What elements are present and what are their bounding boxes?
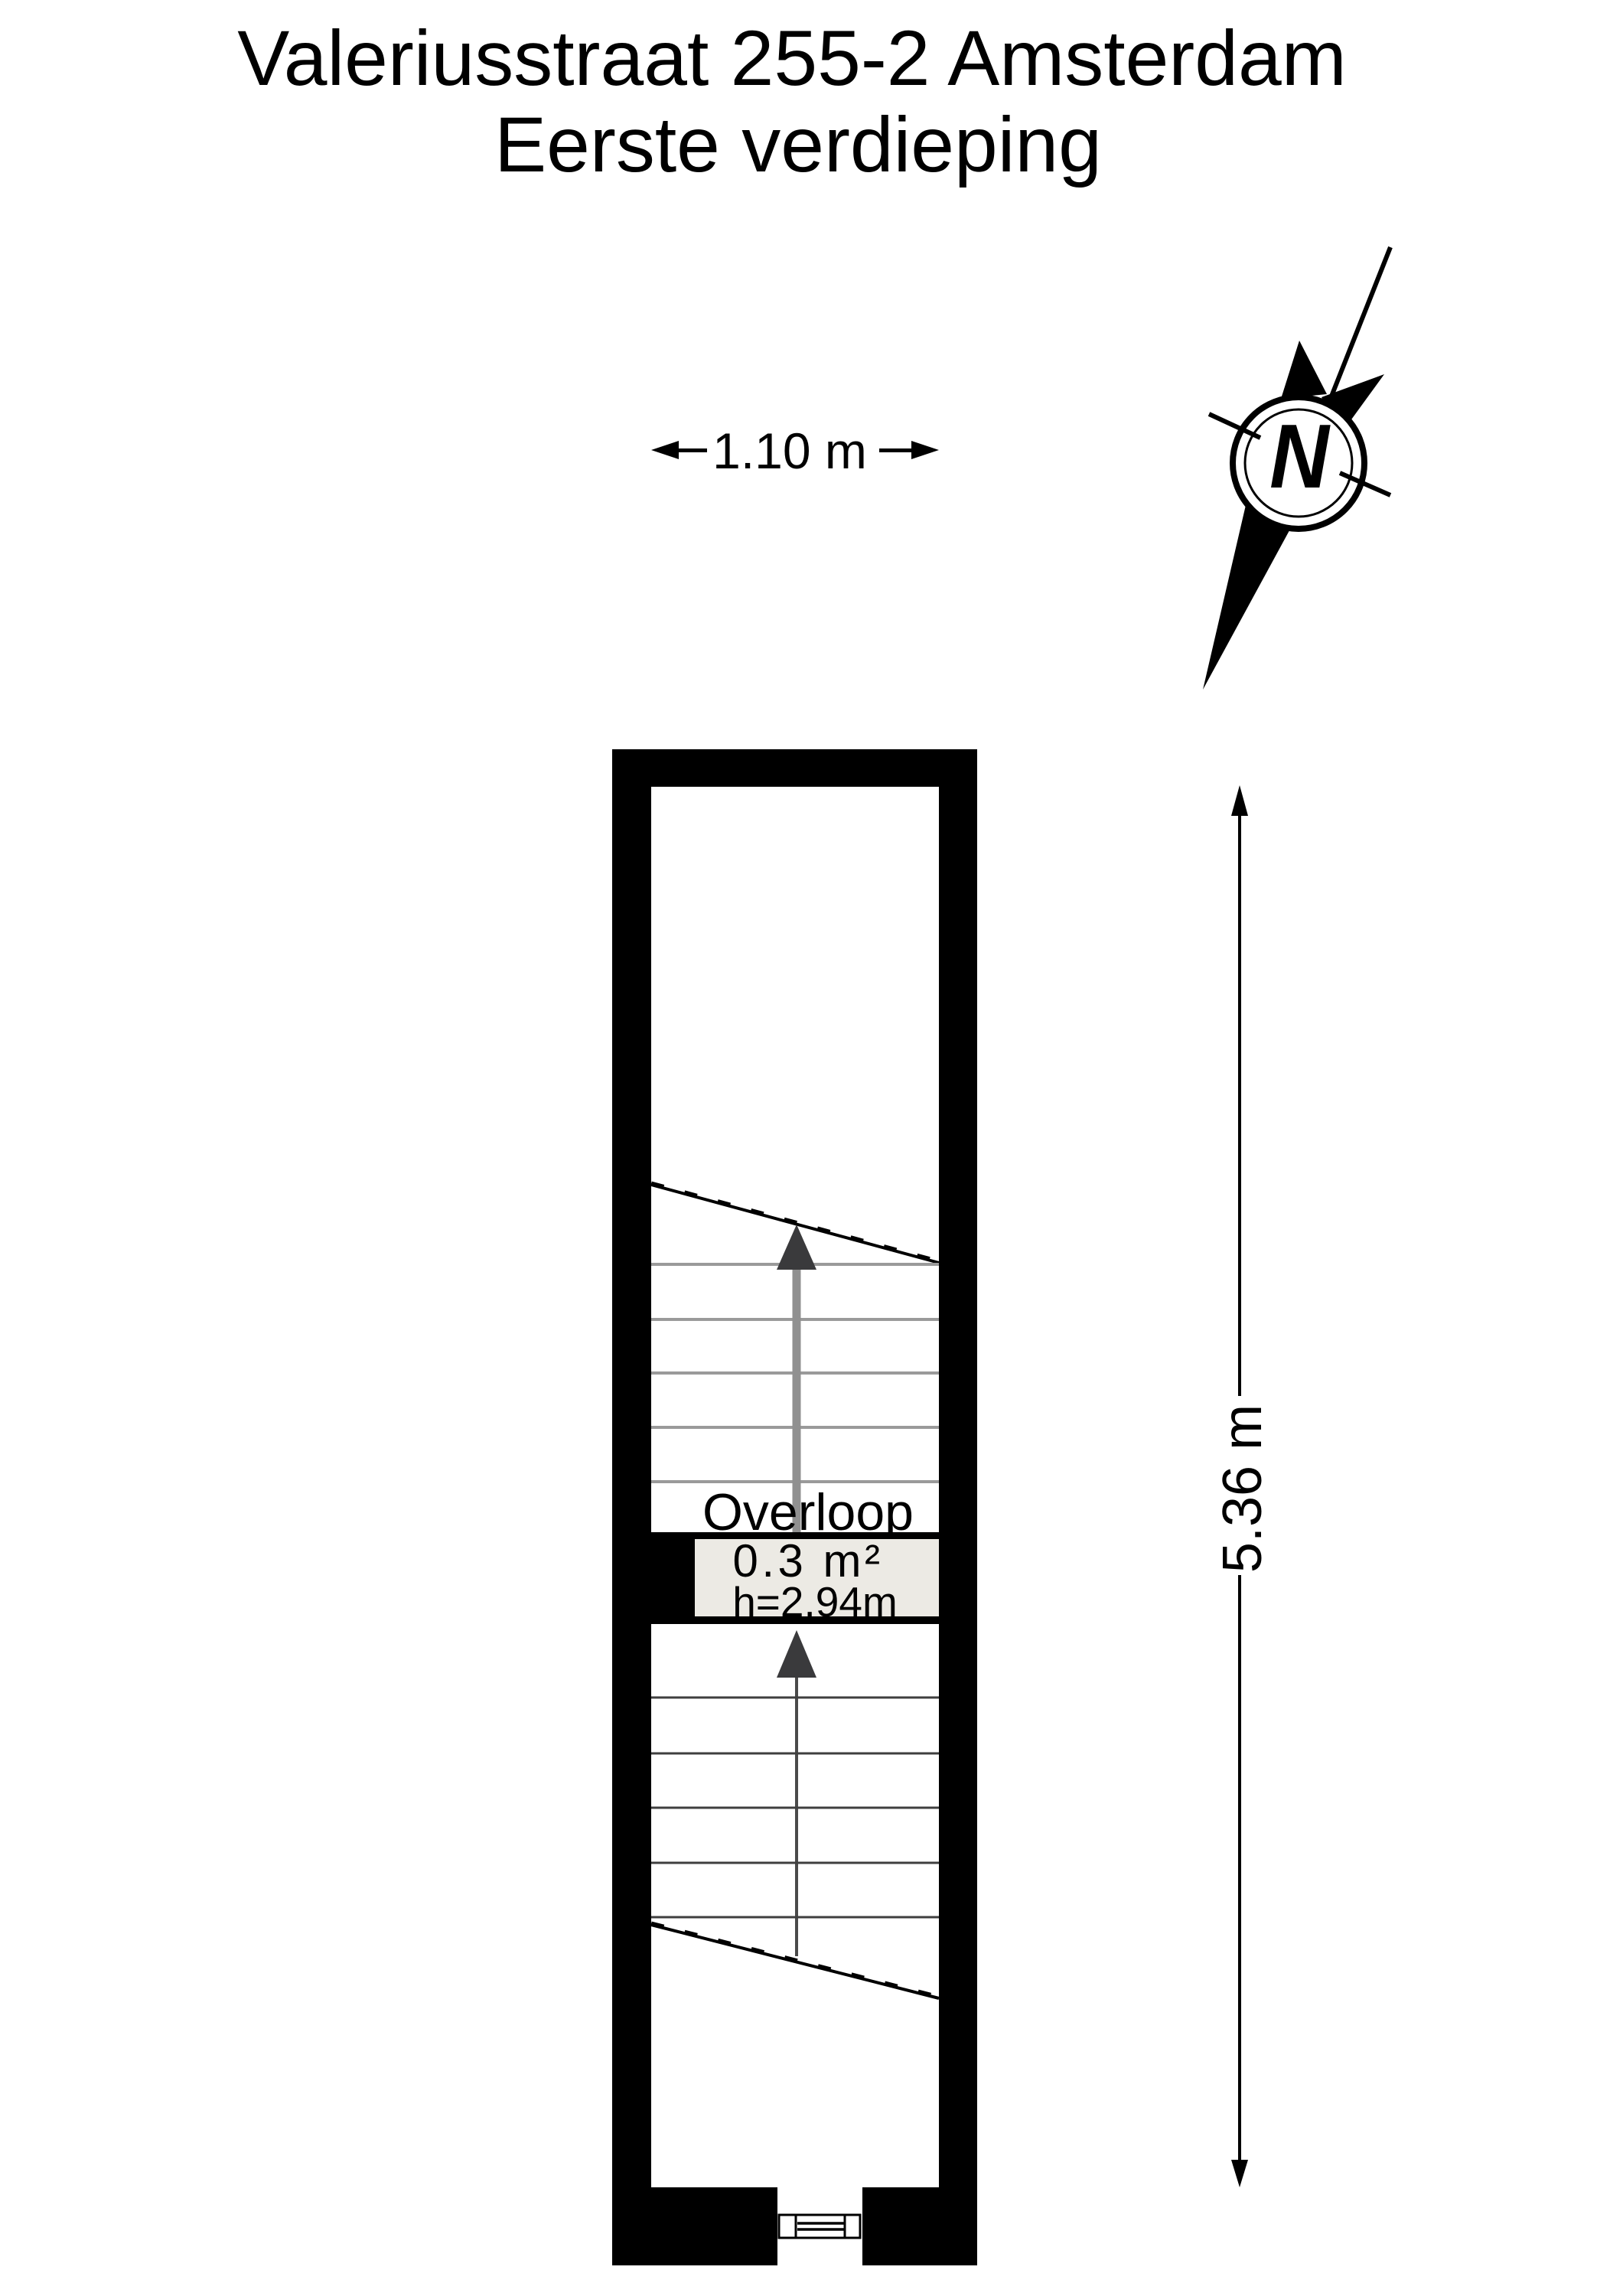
svg-text:Eerste verdieping: Eerste verdieping xyxy=(494,101,1102,188)
svg-text:1.10 m: 1.10 m xyxy=(712,422,867,479)
svg-text:5.36 m: 5.36 m xyxy=(1212,1404,1273,1573)
svg-text:Valeriusstraat 255-2 Amsterdam: Valeriusstraat 255-2 Amsterdam xyxy=(237,15,1346,102)
svg-text:N: N xyxy=(1269,406,1331,507)
